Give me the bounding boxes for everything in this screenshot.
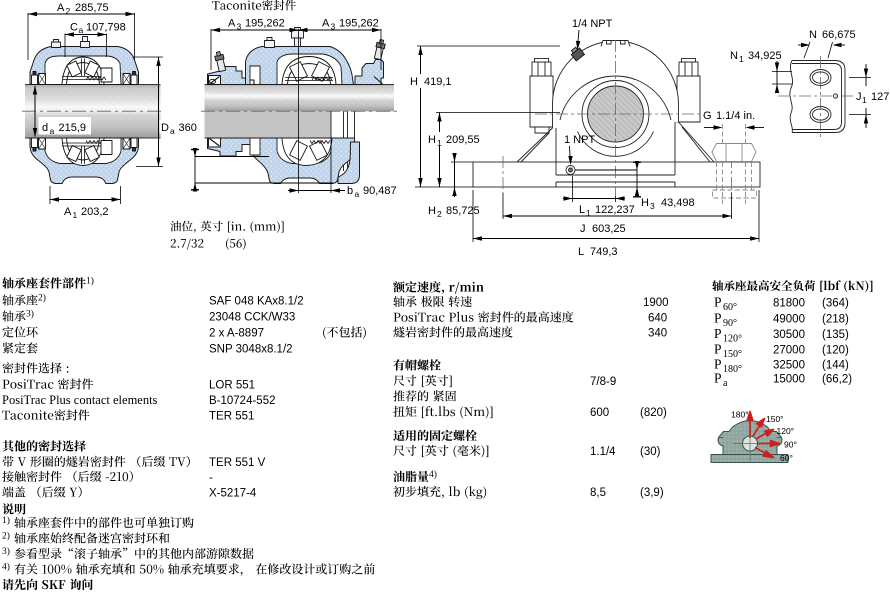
- svg-text:J: J: [856, 91, 862, 103]
- svg-text:2 x A-8897: 2 x A-8897: [209, 328, 264, 340]
- svg-text:G: G: [703, 110, 712, 122]
- svg-text:a: a: [170, 126, 175, 136]
- svg-text:A: A: [64, 206, 72, 218]
- svg-text:15000: 15000: [773, 374, 805, 386]
- svg-text:150°: 150°: [723, 349, 742, 360]
- svg-text:1/4 NPT: 1/4 NPT: [572, 18, 613, 30]
- svg-text:2: 2: [66, 6, 71, 16]
- svg-text:H: H: [641, 197, 649, 209]
- svg-text:1900: 1900: [643, 297, 669, 309]
- svg-text:P: P: [714, 295, 722, 310]
- svg-text:603,25: 603,25: [592, 223, 626, 235]
- svg-text:81800: 81800: [773, 298, 805, 310]
- svg-text:1: 1: [437, 138, 442, 148]
- svg-text:180°: 180°: [731, 410, 749, 420]
- svg-text:(66,2): (66,2): [822, 374, 852, 386]
- svg-text:60°: 60°: [723, 302, 737, 313]
- svg-text:3): 3): [26, 309, 34, 320]
- svg-text:215,9: 215,9: [59, 122, 87, 134]
- svg-text:49000: 49000: [773, 314, 805, 326]
- svg-text:TER 551: TER 551: [209, 411, 254, 423]
- svg-text:90°: 90°: [784, 440, 797, 450]
- svg-text:600: 600: [590, 407, 609, 419]
- svg-text:120°: 120°: [777, 426, 795, 436]
- svg-text:(3,9): (3,9): [640, 487, 664, 499]
- svg-text:23048 CCK/W33: 23048 CCK/W33: [209, 312, 295, 324]
- svg-text:A: A: [57, 2, 65, 14]
- svg-text:A: A: [228, 18, 236, 30]
- svg-text:(218): (218): [822, 314, 849, 326]
- svg-text:66,675: 66,675: [822, 29, 856, 41]
- svg-text:285,75: 285,75: [75, 2, 109, 14]
- svg-text:A: A: [322, 18, 330, 30]
- svg-text:90,487: 90,487: [363, 185, 397, 197]
- svg-text:749,3: 749,3: [590, 246, 618, 258]
- svg-text:L: L: [578, 246, 584, 258]
- svg-text:(820): (820): [640, 407, 667, 419]
- svg-text:1: 1: [739, 54, 744, 64]
- svg-text:SNP 3048x8.1/2: SNP 3048x8.1/2: [209, 344, 293, 356]
- svg-text:419,1: 419,1: [424, 76, 452, 88]
- svg-text:X-5217-4: X-5217-4: [209, 488, 257, 500]
- svg-text:90°: 90°: [723, 318, 737, 329]
- svg-text:b: b: [347, 185, 353, 197]
- svg-text:340: 340: [648, 328, 667, 340]
- svg-text:(135): (135): [822, 329, 849, 341]
- svg-text:LOR 551: LOR 551: [209, 380, 255, 392]
- svg-text:640: 640: [648, 313, 667, 325]
- svg-text:H: H: [428, 205, 436, 217]
- svg-text:P: P: [714, 311, 722, 326]
- svg-text:34,925: 34,925: [748, 50, 782, 62]
- svg-text:(144): (144): [822, 360, 849, 372]
- svg-text:N: N: [730, 50, 738, 62]
- svg-text:d: d: [42, 122, 48, 134]
- svg-text:SAF 048 KAx8.1/2: SAF 048 KAx8.1/2: [209, 296, 304, 308]
- svg-text:195,262: 195,262: [245, 18, 285, 30]
- svg-text:H: H: [428, 134, 436, 146]
- svg-text:2): 2): [2, 531, 10, 542]
- svg-text:150°: 150°: [766, 414, 784, 424]
- svg-text:180°: 180°: [723, 364, 742, 375]
- svg-text:3: 3: [237, 22, 242, 32]
- svg-text:a: a: [79, 25, 84, 35]
- svg-text:TER 551 V: TER 551 V: [209, 457, 266, 469]
- svg-text:120°: 120°: [723, 334, 742, 345]
- svg-text:1.1/4 in.: 1.1/4 in.: [716, 110, 755, 122]
- svg-text:L: L: [579, 204, 585, 216]
- svg-text:a: a: [723, 378, 728, 389]
- svg-text:1.1/4: 1.1/4: [590, 446, 616, 458]
- svg-text:J: J: [580, 223, 586, 235]
- svg-text:a: a: [355, 189, 360, 199]
- svg-text:PosiTrac Plus contact elements: PosiTrac Plus contact elements: [2, 393, 158, 407]
- svg-text:4): 4): [429, 469, 437, 480]
- svg-text:60°: 60°: [780, 453, 793, 463]
- svg-text:-: -: [209, 472, 213, 484]
- svg-text:85,725: 85,725: [446, 205, 480, 217]
- svg-text:27000: 27000: [773, 345, 805, 357]
- svg-text:P: P: [714, 342, 722, 357]
- svg-text:D: D: [161, 122, 169, 134]
- svg-text:(364): (364): [822, 298, 849, 310]
- svg-text:N: N: [809, 29, 817, 41]
- svg-text:203,2: 203,2: [81, 206, 109, 218]
- svg-text:195,262: 195,262: [339, 18, 379, 30]
- svg-text:P: P: [714, 326, 722, 341]
- svg-text:1: 1: [862, 95, 867, 105]
- svg-text:127: 127: [871, 91, 889, 103]
- svg-text:1): 1): [86, 276, 94, 287]
- svg-text:P: P: [714, 357, 722, 372]
- svg-text:32500: 32500: [773, 360, 805, 372]
- svg-text:1: 1: [73, 210, 78, 220]
- svg-text:3: 3: [650, 201, 655, 211]
- svg-text:8,5: 8,5: [590, 487, 606, 499]
- svg-text:3: 3: [331, 22, 336, 32]
- svg-text:1): 1): [2, 515, 10, 526]
- svg-text:2): 2): [38, 293, 46, 304]
- svg-text:122,237: 122,237: [595, 204, 635, 216]
- svg-text:43,498: 43,498: [661, 197, 695, 209]
- svg-text:4): 4): [2, 562, 10, 573]
- svg-text:107,798: 107,798: [86, 22, 126, 34]
- svg-text:(120): (120): [822, 345, 849, 357]
- svg-text:B-10724-552: B-10724-552: [209, 395, 276, 407]
- svg-text:(30): (30): [640, 446, 661, 458]
- svg-text:209,55: 209,55: [446, 134, 480, 146]
- svg-text:C: C: [70, 22, 78, 34]
- svg-text:3): 3): [2, 546, 10, 557]
- svg-text:a: a: [50, 126, 55, 136]
- svg-text:360: 360: [179, 122, 197, 134]
- svg-text:30500: 30500: [773, 329, 805, 341]
- svg-text:7/8-9: 7/8-9: [590, 376, 616, 388]
- svg-text:H: H: [410, 76, 418, 88]
- svg-text:P: P: [714, 371, 722, 386]
- svg-text:2: 2: [437, 209, 442, 219]
- svg-text:1 NPT: 1 NPT: [564, 134, 595, 146]
